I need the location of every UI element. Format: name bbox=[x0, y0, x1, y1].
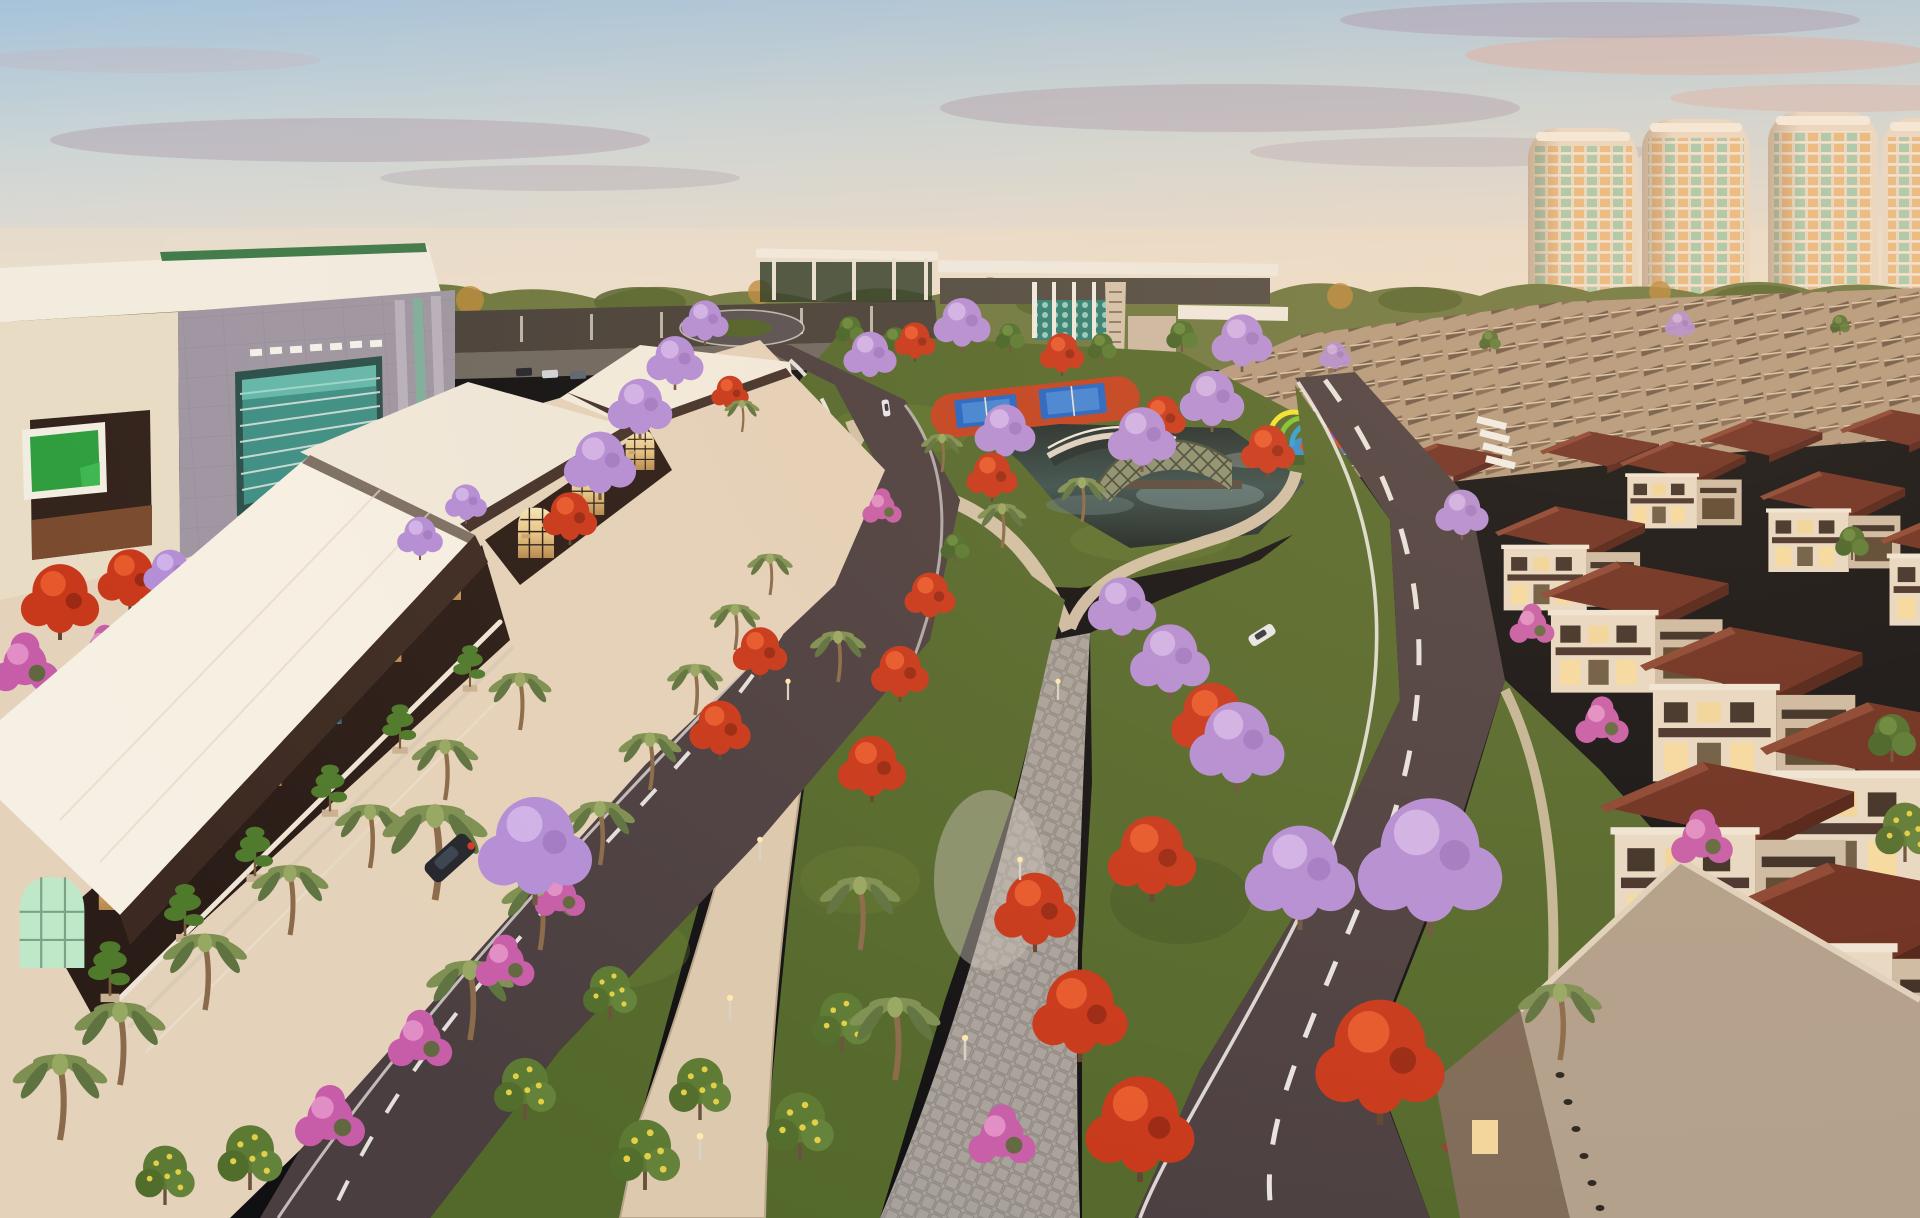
render-canvas bbox=[0, 0, 1920, 1218]
township-render bbox=[0, 0, 1920, 1218]
light-wash bbox=[0, 0, 1920, 1218]
